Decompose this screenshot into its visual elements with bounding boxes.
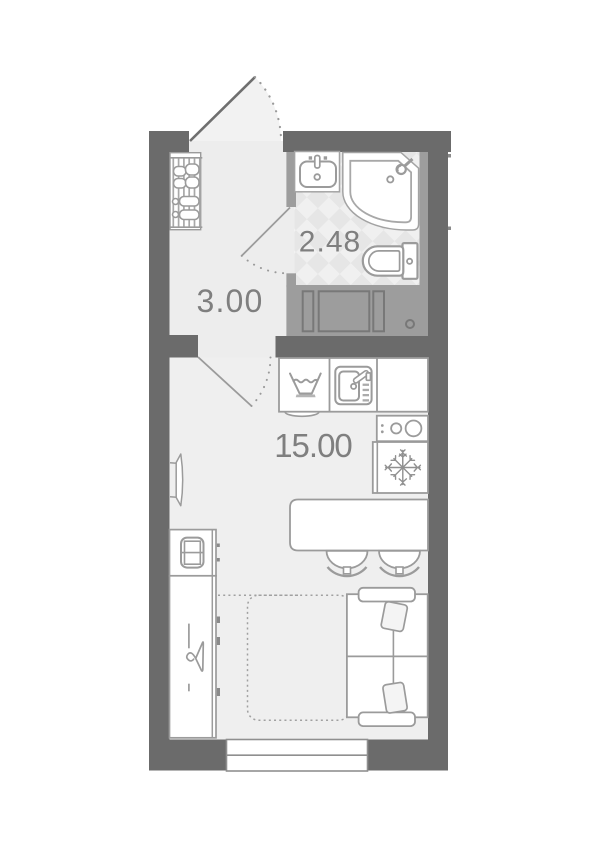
svg-text:3.00: 3.00 [196, 283, 263, 319]
svg-text:2.48: 2.48 [299, 226, 361, 259]
svg-text:15.00: 15.00 [274, 427, 352, 464]
